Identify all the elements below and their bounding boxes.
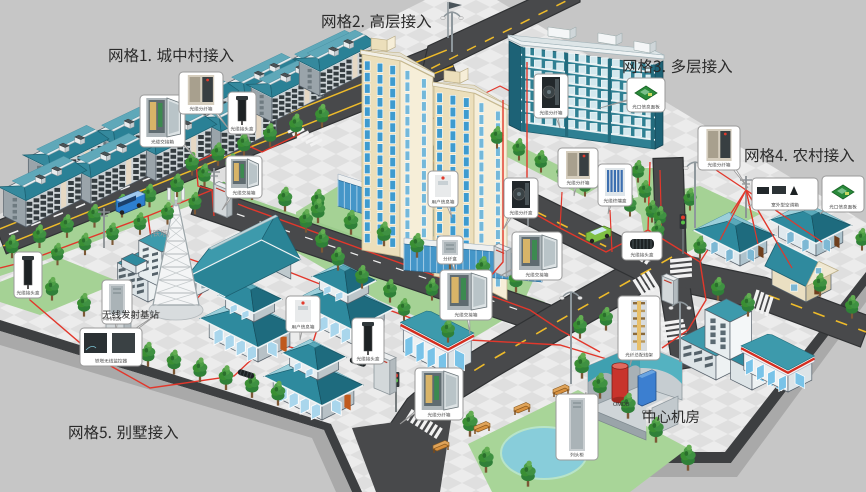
svg-text:OMDB: OMDB [613,402,630,408]
svg-text:OLT: OLT [642,410,653,416]
